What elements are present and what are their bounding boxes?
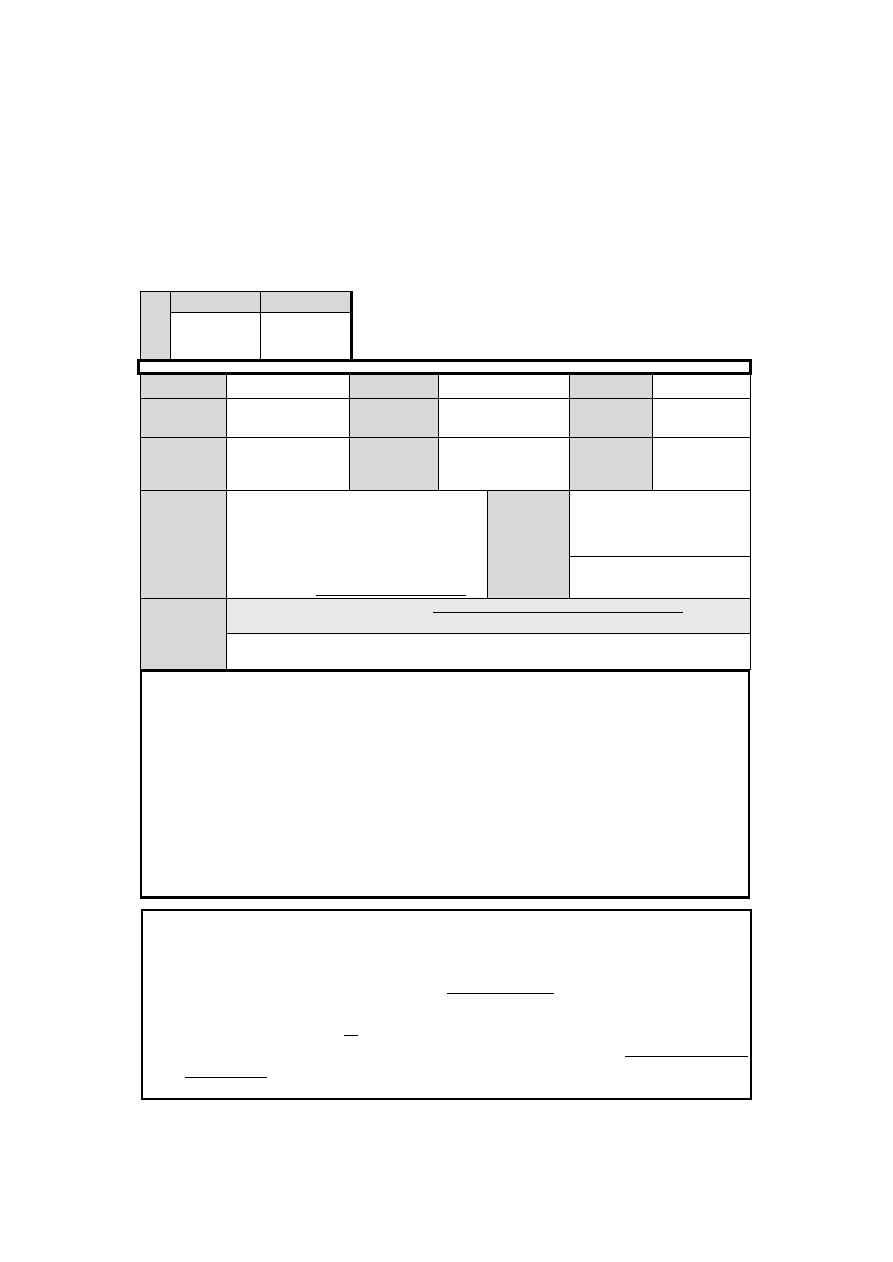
details-row-1 (141, 375, 751, 399)
footer-box (141, 909, 752, 1100)
row3-value-cell-2 (439, 438, 570, 491)
header-table-col1-header (171, 292, 261, 313)
row4-fill-line (316, 595, 466, 596)
details-row-5b (141, 634, 751, 670)
header-table-side-cell (141, 292, 171, 359)
header-table-col2-value (261, 313, 350, 359)
header-table (140, 291, 353, 360)
header-table-col2-header (261, 292, 350, 313)
notes-box (140, 670, 750, 899)
row2-value-cell-3 (653, 399, 751, 438)
row2-label-cell-3 (570, 399, 653, 438)
row5-fill-line (433, 612, 683, 613)
row4-label-cell (141, 491, 227, 599)
row1-label-cell-2 (350, 375, 439, 399)
details-row-4 (141, 491, 751, 557)
footer-blank-line-3 (625, 1056, 748, 1057)
row5-band-cell (227, 599, 751, 634)
row2-value-cell-1 (227, 399, 350, 438)
row4-right-top-cell (570, 491, 751, 557)
row5-label-cell (141, 599, 227, 670)
row5-value-cell (227, 634, 751, 670)
row4-merged-value-cell (227, 491, 488, 599)
row4-right-bottom-cell (570, 557, 751, 599)
details-table (140, 374, 751, 670)
footer-blank-line-2 (344, 1035, 358, 1036)
row1-label-cell-3 (570, 375, 653, 399)
row2-label-cell (141, 399, 227, 438)
row4-label-cell-2 (488, 491, 570, 599)
title-banner (137, 359, 752, 375)
row3-value-cell-3 (653, 438, 751, 491)
row3-label-cell-3 (570, 438, 653, 491)
row1-value-cell-1 (227, 375, 350, 399)
row1-value-cell-3 (653, 375, 751, 399)
header-table-col1-value (171, 313, 261, 359)
row1-label-cell (141, 375, 227, 399)
details-row-2 (141, 399, 751, 438)
row1-value-cell-2 (439, 375, 570, 399)
row2-label-cell-2 (350, 399, 439, 438)
row2-value-cell-2 (439, 399, 570, 438)
details-row-3 (141, 438, 751, 491)
footer-blank-line-1 (447, 993, 554, 994)
footer-blank-line-4 (185, 1077, 267, 1078)
details-table-container (140, 374, 750, 670)
row3-value-cell-1 (227, 438, 350, 491)
row3-label-cell (141, 438, 227, 491)
details-row-5 (141, 599, 751, 634)
document-page (0, 0, 893, 1262)
row3-label-cell-2 (350, 438, 439, 491)
